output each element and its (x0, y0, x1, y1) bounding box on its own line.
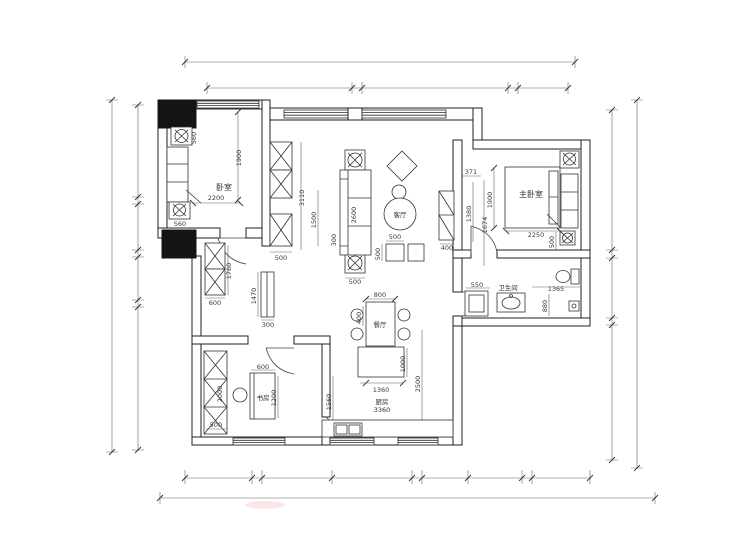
kitchen-fixtures (322, 420, 453, 437)
bed (167, 147, 201, 203)
room-label-bathroom: 卫生间 (498, 283, 518, 292)
dim-label: 1360 (373, 386, 390, 394)
room-label-study: 书房 (257, 393, 270, 402)
dim-label: 1900 (486, 192, 494, 209)
dim-label: 800 (374, 291, 386, 299)
dim-label: 500 (275, 254, 287, 262)
floor-plan-canvas: 2200 1900 560 560 3110 500 1760 600 1470… (0, 0, 740, 555)
room-label-guest-bedroom: 卧室 (216, 182, 232, 192)
lamp-icon (345, 150, 365, 170)
dim-label: 2250 (528, 231, 545, 239)
window-kitchen-2 (398, 438, 438, 445)
dim-label: 1900 (235, 150, 243, 167)
outer-dimension-lines-bottom (157, 470, 658, 504)
dim-label: 2000 (216, 386, 224, 403)
toilet-icon (556, 269, 579, 284)
corridor-cabinet (205, 243, 225, 295)
watermark-smudge (245, 501, 285, 509)
outer-dimension-lines-left (106, 97, 144, 455)
window-living-right (362, 110, 446, 118)
dining-chair (351, 328, 363, 340)
dim-label: 1365 (548, 285, 565, 293)
dim-label: 560 (174, 220, 186, 228)
dim-label: 550 (471, 281, 483, 289)
lamp-icon (345, 253, 365, 273)
dim-label: 500 (349, 278, 361, 286)
column (162, 230, 196, 258)
ceiling-fan-icon (560, 151, 579, 168)
coffee-table (384, 185, 416, 230)
sink-icon (497, 293, 525, 312)
stool (408, 244, 424, 261)
dim-label: 1560 (325, 394, 333, 411)
dim-label: 300 (262, 321, 274, 329)
shower (465, 291, 488, 316)
dim-label: 1674 (481, 217, 489, 234)
dim-label: 500 (389, 233, 401, 241)
window-living-left (284, 110, 348, 118)
dim-label: 1500 (310, 212, 318, 229)
stool (386, 244, 404, 261)
column (158, 100, 196, 128)
room-label-kitchen: 厨房 (376, 397, 389, 406)
dim-label: 500 (548, 236, 556, 248)
dim-label: 600 (209, 299, 221, 307)
dim-label: 500 (374, 248, 382, 260)
dim-label: 1470 (250, 288, 258, 305)
room-label-kitchen-dim: 3360 (374, 406, 391, 414)
window-guest-bedroom (197, 101, 259, 108)
dim-label: 2200 (208, 194, 225, 202)
room-label-living-room: 客厅 (394, 210, 408, 219)
dim-label: 880 (541, 300, 549, 312)
sink-icon (334, 423, 362, 436)
tv-cabinet (439, 191, 454, 240)
ceiling-fan-icon (171, 127, 192, 145)
chair (233, 388, 247, 402)
window-study (233, 438, 285, 445)
floor-drain-icon (569, 301, 579, 311)
floor-plan-page: 2200 1900 560 560 3110 500 1760 600 1470… (0, 0, 740, 555)
dim-label: 2600 (350, 207, 358, 224)
hall-shelf (261, 272, 274, 317)
ceiling-fan-icon (169, 202, 190, 219)
dim-label: 300 (330, 234, 338, 246)
dim-label: 371 (465, 168, 477, 176)
outer-dimension-lines-top (182, 56, 578, 94)
dining-chair (398, 328, 410, 340)
window-kitchen (330, 438, 374, 445)
dim-label: 400 (355, 312, 363, 324)
wardrobe (561, 174, 578, 228)
room-label-master-bedroom: 主卧室 (519, 189, 543, 199)
dim-label: 400 (441, 244, 453, 252)
dim-label: 560 (190, 132, 198, 144)
island-cabinet (358, 347, 404, 377)
dim-label: 1200 (270, 390, 278, 407)
dim-label: 3110 (298, 190, 306, 207)
dining-chair (398, 309, 410, 321)
outer-dimension-lines-right (606, 97, 643, 471)
dim-label: 600 (257, 363, 269, 371)
dim-label: 500 (210, 421, 222, 429)
dim-label: 1000 (399, 356, 407, 373)
dim-label: 1760 (225, 263, 233, 280)
decor-diamond (387, 151, 417, 181)
dim-label: 1380 (465, 206, 473, 223)
room-label-dining-room: 餐厅 (374, 320, 388, 329)
window-pier (348, 108, 362, 120)
dim-label: 2500 (414, 376, 422, 393)
